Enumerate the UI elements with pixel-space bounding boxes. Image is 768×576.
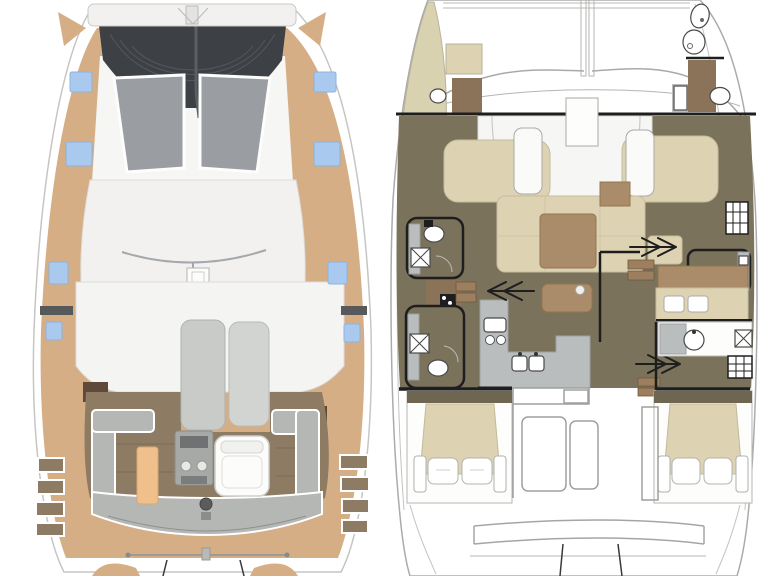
port-head-aft: [406, 306, 464, 388]
stove: [484, 318, 506, 332]
wardrobe-hatched: [726, 202, 748, 234]
pillow: [688, 296, 708, 312]
bow-head-toilet: [683, 30, 705, 54]
pillow: [672, 458, 700, 484]
seat-back-port: [514, 128, 542, 194]
fitting-dot: [442, 296, 446, 300]
port-head-forward: [407, 218, 463, 278]
deck-hatch: [66, 142, 92, 166]
bow-head-floor: [688, 60, 716, 112]
galley-sink: [529, 356, 544, 371]
transom-bracket: [201, 512, 211, 520]
interior-plan: [391, 0, 757, 576]
table-lamp: [576, 286, 585, 295]
front-window-port: [114, 75, 184, 172]
pillow: [428, 458, 458, 484]
sunroof-panel-right: [229, 322, 269, 426]
floorplan-image: [0, 0, 768, 576]
deck-shadow-port: [40, 306, 73, 315]
deck-hatch: [70, 72, 92, 92]
transom-fitting: [200, 498, 212, 510]
deck-plan: [33, 4, 371, 576]
helm-seat-back: [221, 441, 263, 453]
bow-head-sink2: [674, 86, 687, 110]
grill-knob: [197, 461, 207, 471]
toilet: [428, 360, 448, 376]
deck-hatch: [314, 72, 336, 92]
cockpit-table: [137, 447, 158, 504]
grill-knob: [181, 461, 191, 471]
nightstand: [494, 456, 506, 492]
nightstand: [658, 456, 670, 492]
fitting-dot: [448, 301, 452, 305]
sideboard: [600, 182, 630, 206]
sunroof-panel-left: [181, 320, 225, 430]
aft-cabin-port: [407, 391, 512, 503]
starboard-headboard: [658, 266, 748, 288]
deck-hatch: [344, 324, 360, 342]
galley-sink: [512, 356, 527, 371]
grill-drawer: [181, 476, 207, 484]
mast-step-window: [566, 98, 598, 146]
fixture-dot: [700, 18, 704, 22]
pillow: [664, 296, 684, 312]
fwd-shower-floor: [452, 78, 482, 114]
pillow: [462, 458, 492, 484]
dinette-table: [540, 214, 596, 268]
nightstand: [736, 456, 748, 492]
aft-cabin-starboard: [654, 391, 752, 503]
deck-hatch: [49, 262, 68, 284]
rail-end: [126, 553, 131, 558]
faucet: [518, 352, 522, 356]
deck-hatch: [46, 322, 62, 340]
floorplan-svg: [0, 0, 768, 576]
fwd-berth-port: [446, 44, 482, 74]
rail-end: [285, 553, 290, 558]
deck-hatch: [328, 262, 347, 284]
rail-center-mount: [202, 548, 210, 560]
fwd-toilet-port: [430, 89, 446, 103]
front-window-starboard: [200, 75, 270, 172]
burner: [486, 336, 495, 345]
deck-shadow-starboard: [341, 306, 367, 315]
locker-hatched: [728, 356, 752, 378]
nightstand: [414, 456, 426, 492]
toilet: [424, 226, 444, 242]
burner: [497, 336, 506, 345]
starboard-head-aft: [658, 322, 752, 356]
deck-hatch: [314, 142, 340, 166]
basin-tap: [692, 330, 696, 334]
faucet: [534, 352, 538, 356]
bow-head-toilet2: [710, 88, 730, 105]
grill-top: [180, 436, 208, 448]
pillow: [704, 458, 732, 484]
